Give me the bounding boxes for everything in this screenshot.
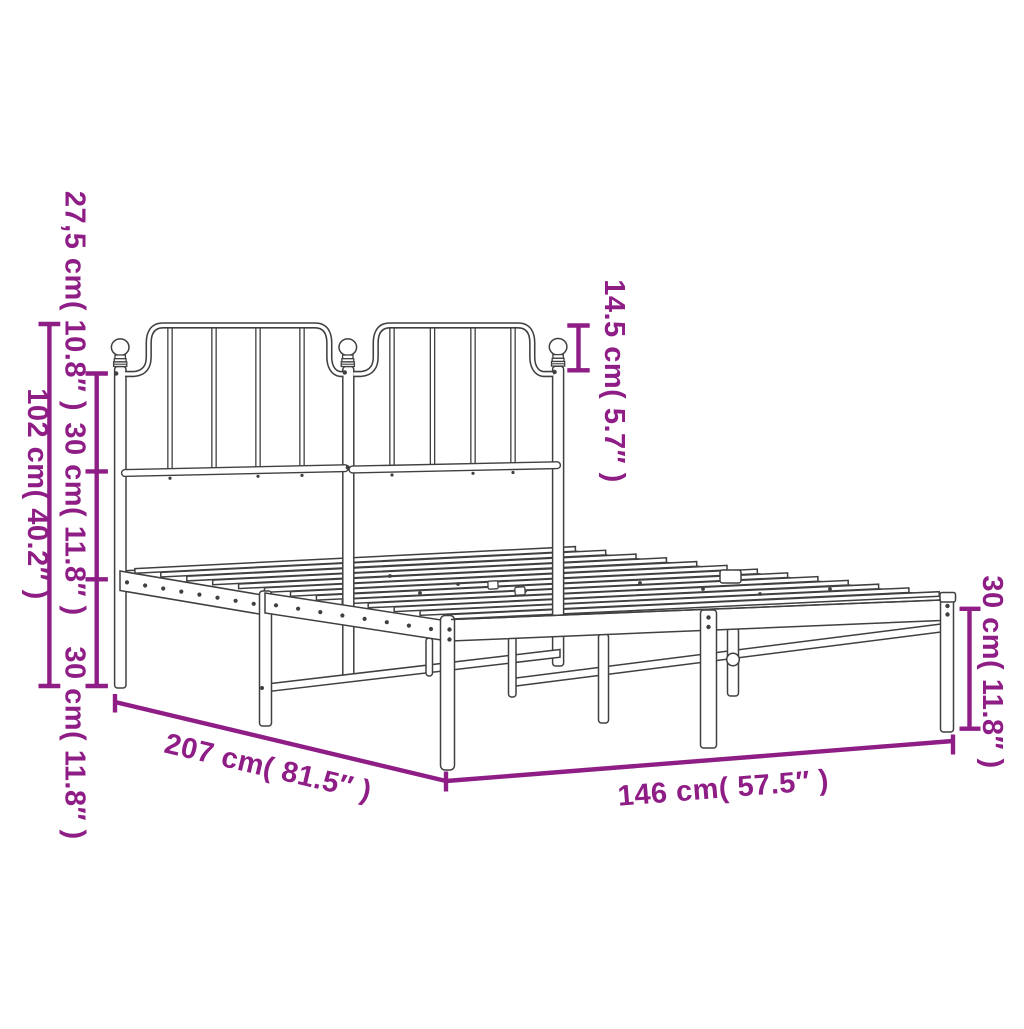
- svg-text:30 cm( 11.8″ ): 30 cm( 11.8″ ): [59, 422, 91, 615]
- svg-text:27,5 cm( 10.8″ ): 27,5 cm( 10.8″ ): [59, 191, 91, 411]
- svg-text:30 cm( 11.8″ ): 30 cm( 11.8″ ): [59, 646, 91, 839]
- svg-text:30 cm( 11.8″ ): 30 cm( 11.8″ ): [976, 575, 1008, 768]
- svg-text:14.5 cm( 5.7″ ): 14.5 cm( 5.7″ ): [598, 279, 630, 483]
- svg-text:102 cm( 40.2″ ): 102 cm( 40.2″ ): [21, 388, 53, 600]
